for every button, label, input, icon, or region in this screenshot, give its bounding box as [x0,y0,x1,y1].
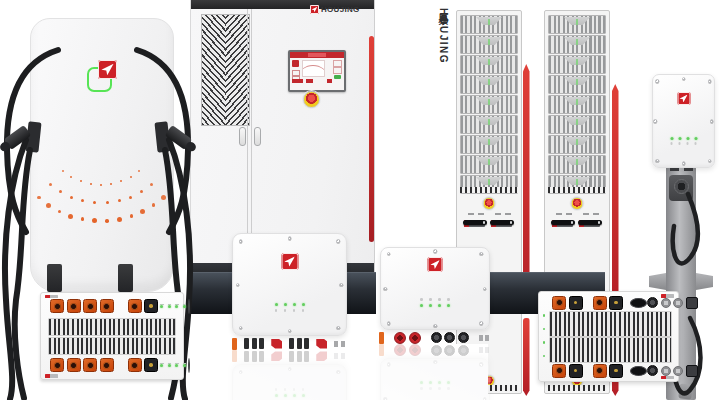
connector [297,338,302,349]
indicator-dot [37,196,41,200]
status-led [275,389,278,392]
screw-icon [239,239,243,243]
connector [431,332,442,343]
indicator-dot [152,203,156,207]
battery-module [460,115,518,134]
connector [479,335,483,341]
vent-slats [548,385,606,391]
indicator-dot [106,201,109,204]
status-led [168,304,172,309]
connector [647,365,658,376]
connector [379,345,384,357]
status-leds [275,303,305,312]
inverter-box [232,364,347,400]
connector [552,296,566,310]
status-leds [420,298,450,307]
indicator-dot [100,184,102,186]
connector [259,338,264,349]
status-led [678,142,681,145]
connector [630,298,647,308]
inverter-box [380,247,490,330]
houjing-product-collage: 厚景HOUJING [0,0,719,400]
accent-stripe [612,84,619,314]
screw-icon [480,252,484,256]
battery-module [460,155,518,174]
status-led [302,389,305,392]
status-led [670,137,673,140]
status-led [284,309,287,312]
indicator-dot [150,183,153,186]
screw-icon [480,363,484,367]
battery-module [460,55,518,74]
connector [552,364,566,378]
battery-module [548,115,606,134]
indicator-dot [130,214,134,218]
screw-icon [387,363,391,367]
screw-icon [340,283,344,287]
indicator-dot [62,170,64,172]
status-led [293,303,296,306]
connector-panel [552,295,672,310]
rectifier-module [538,291,679,382]
connector [341,354,345,360]
vent-grille [48,318,176,336]
indicator-dot [70,196,73,199]
status-led [429,304,432,307]
status-led [438,304,441,307]
connector-panel [50,357,176,373]
status-led [686,142,689,145]
connector [297,351,302,362]
connector [289,351,294,362]
status-led [678,137,681,140]
connector [244,338,249,349]
status-led [438,382,441,385]
vent-slats [548,187,606,193]
dc-fast-charger [0,0,196,400]
status-led [420,388,423,391]
indicator-dot [58,210,62,214]
status-led [183,363,187,368]
connector [593,296,607,310]
charger-leg [118,264,133,292]
locking-knob [188,299,190,314]
houjing-mini-logo-icon [45,374,58,378]
emergency-stop-button [483,197,496,210]
status-led [284,303,287,306]
connector [661,366,671,376]
status-led [302,303,305,306]
brand-name: HOUJING [321,5,360,14]
connector [232,351,237,363]
screw-icon [480,322,484,326]
status-led [275,309,278,312]
status-led [429,382,432,385]
status-led [438,388,441,391]
status-led [284,394,287,397]
houjing-logo-icon [310,5,319,14]
status-led [686,137,689,140]
status-led [447,298,450,301]
emergency-stop-button [571,197,584,210]
inverter-box-group [232,350,345,400]
connector [379,332,384,344]
connector [409,345,421,357]
indicator-dot [80,180,82,182]
indicator-dot [140,190,143,193]
terminal-strip [236,350,341,363]
screw-icon [656,159,660,163]
screw-icon [288,236,292,240]
inverter-box-group [232,233,345,350]
screw-icon [656,80,660,84]
connector [334,354,338,360]
indicator-dot [59,190,62,193]
battery-module [548,15,606,34]
battery-module [460,95,518,114]
charger-leg [47,264,62,292]
connector [609,364,623,378]
connector [630,366,647,376]
status-led [293,389,296,392]
connector [334,341,338,347]
status-led [694,137,697,140]
connector [458,332,469,343]
screw-icon [682,77,686,81]
status-leds [158,363,188,368]
power-connectors [50,299,158,313]
status-led [447,382,450,385]
status-led [429,388,432,391]
status-led [275,394,278,397]
indicator-dot [46,203,51,208]
connector [673,366,683,376]
indicator-dot [105,219,109,223]
connector [673,298,683,308]
hmi-display [288,50,346,92]
indicator-dot [49,183,52,186]
indicator-dot [161,195,166,200]
connector [316,339,327,349]
screw-icon [384,287,388,291]
connector [569,364,583,378]
status-led [160,363,164,368]
status-led [302,394,305,397]
connector [444,345,455,356]
status-led [175,304,179,309]
connector [252,338,257,349]
brand-logo: HOUJING [310,5,360,14]
indicator-dot [110,183,112,185]
terminal-strip [384,331,484,344]
status-led [293,309,296,312]
status-leds [543,314,546,357]
battery-module [460,15,518,34]
houjing-logo-icon [677,92,690,105]
status-leds [158,304,188,309]
screw-icon [708,159,712,163]
connector [569,296,583,310]
connector [593,364,607,378]
houjing-logo-icon [428,257,443,272]
battery-module [460,75,518,94]
connector [100,299,114,313]
battery-module [548,95,606,114]
connector [50,299,64,313]
status-leds [420,382,450,391]
connector [144,299,158,313]
status-leds [670,137,697,145]
inverter-box-group [380,344,488,400]
indicator-dot [81,217,85,221]
power-connectors [50,358,158,372]
screw-icon [239,326,243,330]
power-connectors [552,296,647,310]
connector [304,338,309,349]
screw-icon [682,162,686,166]
screw-icon [654,119,658,123]
connector [485,335,489,341]
connector [647,297,658,308]
door-handle [254,127,261,146]
screw-icon [236,283,240,287]
status-led [183,304,187,309]
battery-module [460,35,518,54]
houjing-logo-icon [281,253,298,270]
connector [341,341,345,347]
screw-icon [483,287,487,291]
status-led [168,363,172,368]
indicator-dot [81,199,84,202]
status-led [160,304,164,309]
connector [304,351,309,362]
connector [50,358,64,372]
connector [409,332,421,344]
screw-icon [433,324,437,328]
connector [458,345,469,356]
status-led [420,298,423,301]
wallbox-charger [652,74,715,168]
signal-connectors [647,297,698,309]
screw-icon [336,239,340,243]
status-led [284,389,287,392]
door-handle [239,127,246,146]
pillar-bracket [696,273,713,290]
screw-icon [433,249,437,253]
connector [686,297,698,309]
connector [271,352,282,362]
status-led [275,303,278,306]
pillar-bracket [649,273,666,290]
battery-module [548,135,606,154]
power-module-unit [40,292,184,380]
connector [394,332,406,344]
indicator-dot [92,218,97,223]
rotary-switch [491,213,514,228]
connector [144,358,158,372]
rotary-switch [579,213,602,228]
indicator-dot [90,183,92,185]
locking-knob [188,358,190,373]
door-seam [247,9,248,263]
accent-stripe [523,318,530,396]
status-led [670,142,673,145]
door-seam [251,9,252,263]
screw-icon [288,367,292,371]
status-led [447,388,450,391]
screw-icon [336,370,340,374]
battery-module [548,35,606,54]
inverter-box [232,233,347,336]
inverter-box-group [380,247,488,344]
connector [289,338,294,349]
battery-module [548,75,606,94]
indicator-dot [70,176,72,178]
screw-icon [387,322,391,326]
screw-icon [710,119,714,123]
connector [83,299,97,313]
connector [271,339,282,349]
vent-grille [549,337,672,363]
vent-slats [460,187,518,193]
indicator-dot [140,209,145,214]
screw-icon [288,329,292,333]
battery-module-stack [547,14,607,195]
vent-grille [549,311,672,337]
connector [479,348,483,354]
ventilation-grille [201,14,250,126]
connector [128,358,142,372]
status-led [293,394,296,397]
rack-brand-label: 厚景HOUJING [436,5,450,100]
rotary-switch [552,213,575,228]
screw-icon [387,252,391,256]
connector [128,299,142,313]
power-connectors [552,364,647,378]
connector [100,358,114,372]
status-led [694,142,697,145]
connector-panel [552,363,672,378]
screw-icon [708,80,712,84]
status-led [420,304,423,307]
charging-gun [678,383,692,399]
connector [316,352,327,362]
connector [661,298,671,308]
terminal-strip [384,344,484,357]
status-led [420,382,423,385]
connector [431,345,442,356]
status-led [302,309,305,312]
status-leds [275,389,305,398]
indicator-dot [117,217,122,222]
indicator-dot [120,180,122,182]
connector [67,358,81,372]
status-led [175,363,179,368]
battery-module [548,155,606,174]
connector [485,348,489,354]
indicator-dot [130,176,132,178]
connector [244,351,249,362]
status-led [447,304,450,307]
battery-module [548,55,606,74]
connector [67,299,81,313]
indicator-dot [68,214,73,219]
screw-icon [239,370,243,374]
terminal-strip [236,337,341,350]
gun-holster [669,175,693,201]
connector [259,351,264,362]
screw-icon [433,361,437,365]
hmi-content [290,58,344,84]
connector [252,351,257,362]
inverter-box [380,358,490,400]
connector [686,365,698,377]
connector-panel [50,298,176,314]
connector [444,332,455,343]
connector [394,345,406,357]
accent-stripe [369,36,374,242]
signal-connectors [647,365,698,377]
connector [609,296,623,310]
vent-grille [48,337,176,355]
status-led [429,298,432,301]
indicator-dot [138,170,140,172]
battery-module [460,135,518,154]
connector [232,338,237,350]
connector [83,358,97,372]
indicator-dot [129,196,132,199]
status-led [438,298,441,301]
battery-module-stack [459,14,519,195]
emergency-stop-button [303,91,320,108]
rotary-switch [464,213,487,228]
indicator-dot [93,201,96,204]
screw-icon [336,326,340,330]
indicator-dot [118,199,121,202]
